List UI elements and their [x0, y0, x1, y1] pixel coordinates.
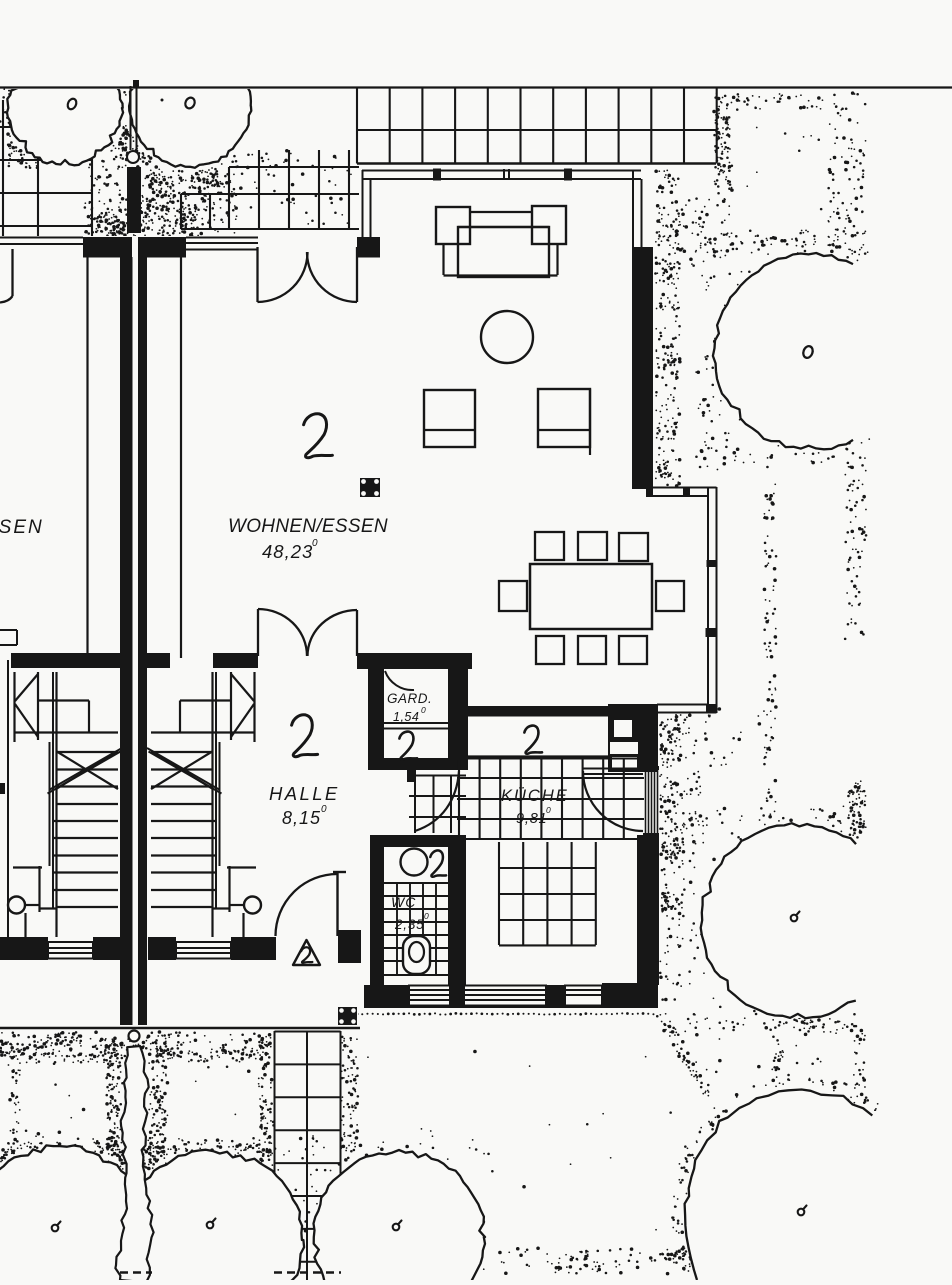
svg-text:KÜCHE: KÜCHE [501, 787, 569, 805]
svg-text:WC: WC [391, 894, 416, 910]
svg-text:0: 0 [421, 705, 426, 715]
svg-text:2,35: 2,35 [394, 917, 424, 932]
svg-text:0: 0 [321, 804, 327, 815]
svg-text:GARD.: GARD. [387, 691, 432, 706]
svg-text:1,54: 1,54 [393, 710, 419, 724]
svg-text:8,15: 8,15 [282, 808, 321, 828]
svg-text:0: 0 [546, 805, 551, 815]
svg-text:SSEN: SSEN [0, 517, 44, 538]
svg-text:HALLE: HALLE [269, 783, 340, 804]
svg-text:9,81: 9,81 [516, 811, 547, 827]
svg-text:48,23: 48,23 [262, 541, 313, 562]
svg-text:WOHNEN/ESSEN: WOHNEN/ESSEN [228, 516, 388, 537]
svg-text:0: 0 [424, 911, 429, 921]
svg-text:0: 0 [312, 538, 318, 549]
